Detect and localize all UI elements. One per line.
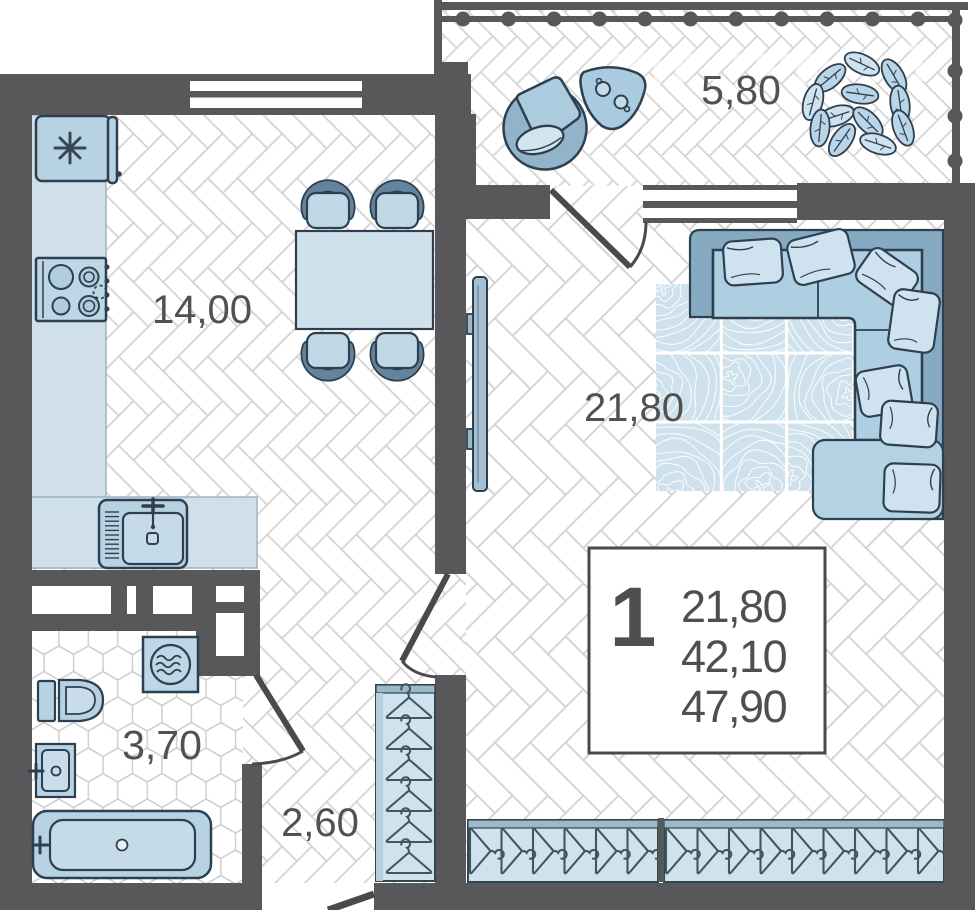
svg-text:21,80: 21,80 — [681, 581, 787, 632]
svg-text:5,80: 5,80 — [701, 67, 781, 113]
svg-text:1: 1 — [610, 570, 657, 664]
svg-text:42,10: 42,10 — [681, 631, 787, 682]
svg-text:2,60: 2,60 — [281, 801, 359, 845]
svg-text:21,80: 21,80 — [584, 386, 684, 430]
svg-text:47,90: 47,90 — [681, 681, 787, 732]
svg-text:3,70: 3,70 — [122, 722, 202, 768]
svg-text:14,00: 14,00 — [152, 288, 252, 332]
